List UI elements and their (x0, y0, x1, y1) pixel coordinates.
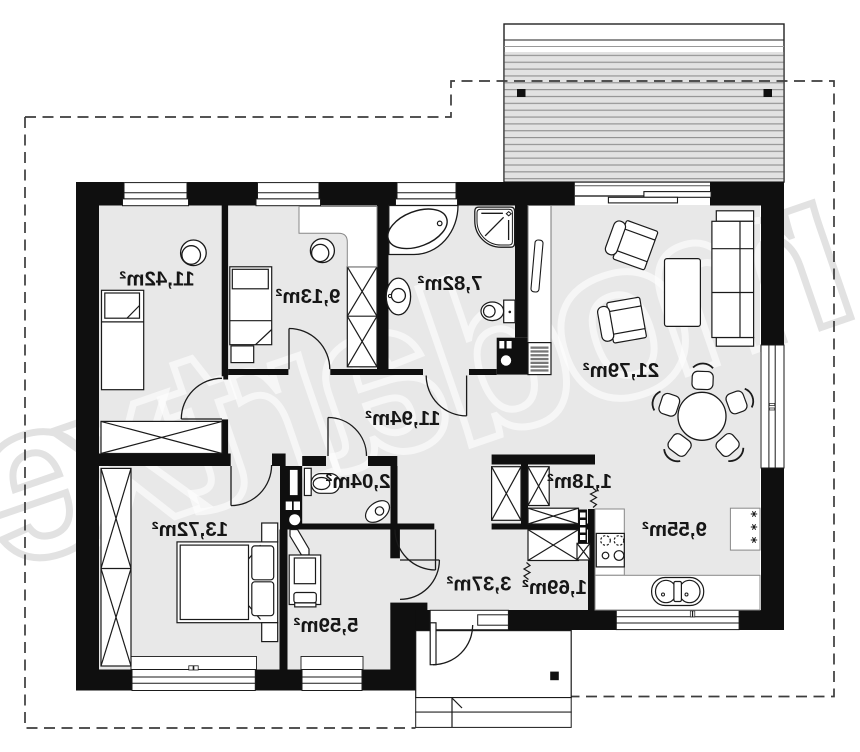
svg-text:21,79m²: 21,79m² (583, 359, 660, 382)
svg-text:9,55m²: 9,55m² (642, 518, 707, 541)
svg-text:3,37m²: 3,37m² (446, 573, 511, 596)
svg-text:13,72m²: 13,72m² (152, 518, 229, 541)
svg-text:1,18m²: 1,18m² (547, 470, 612, 493)
svg-text:11,42m²: 11,42m² (119, 268, 194, 291)
svg-text:7,82m²: 7,82m² (417, 272, 482, 295)
svg-text:9,13m²: 9,13m² (275, 285, 340, 308)
svg-text:5,59m²: 5,59m² (293, 614, 358, 637)
svg-text:11,94m²: 11,94m² (365, 407, 440, 430)
svg-text:2,04m²: 2,04m² (325, 470, 390, 493)
svg-text:1,69m²: 1,69m² (522, 576, 587, 599)
